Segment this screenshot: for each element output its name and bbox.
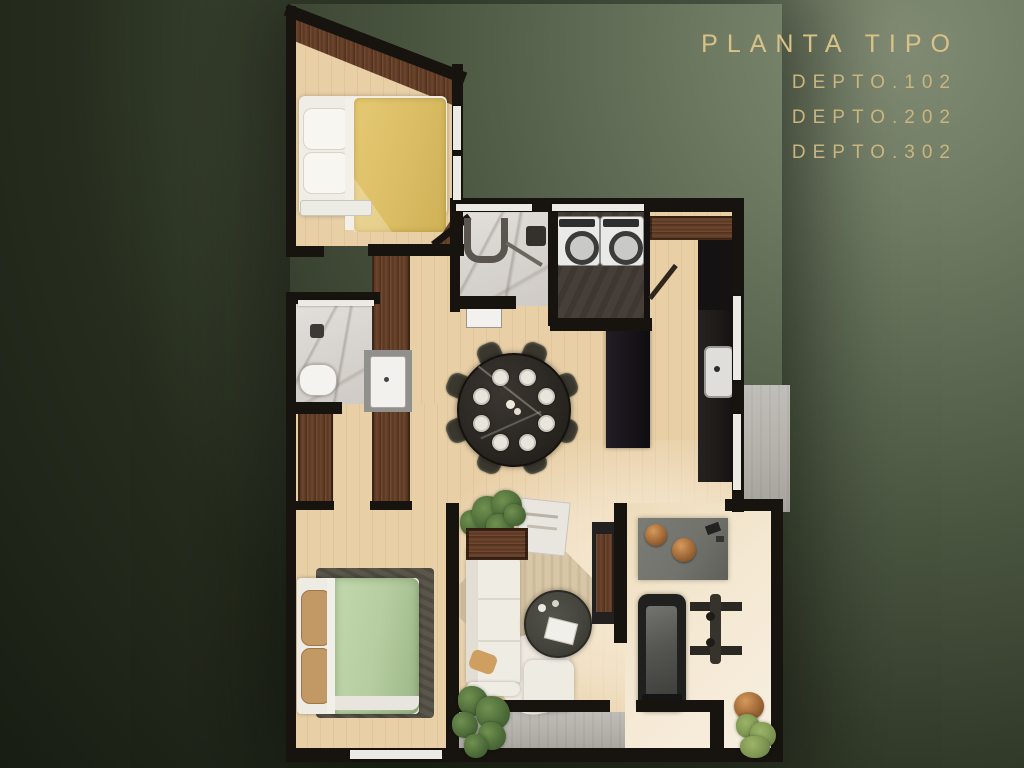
coffee-table-cup bbox=[538, 604, 546, 612]
bedroom2-window bbox=[350, 750, 442, 759]
wall bbox=[450, 296, 516, 309]
closet-end-cap bbox=[370, 501, 412, 510]
place-setting bbox=[473, 388, 490, 405]
floor-plan-scene: { "title_block": { "title": "PLANTA TIPO… bbox=[0, 0, 1024, 768]
barbell-plate bbox=[706, 612, 715, 621]
kitchen-sink bbox=[704, 346, 734, 398]
wall bbox=[548, 208, 558, 326]
wall bbox=[771, 499, 783, 762]
wall bbox=[710, 700, 724, 760]
place-setting bbox=[492, 369, 509, 386]
plant-leaves bbox=[504, 504, 526, 526]
table-centerpiece bbox=[514, 408, 521, 415]
bed2-duvet-green bbox=[335, 578, 419, 714]
planter-box bbox=[466, 528, 528, 560]
wall bbox=[550, 318, 652, 331]
unit-label: DEPTO.102 bbox=[701, 72, 957, 94]
bathroom2-glass bbox=[298, 300, 374, 306]
toilet1 bbox=[464, 218, 508, 263]
place-setting bbox=[538, 415, 555, 432]
table-centerpiece bbox=[506, 400, 515, 409]
wall bbox=[286, 292, 296, 762]
washer-door bbox=[565, 231, 599, 265]
kitchen-faucet bbox=[714, 366, 720, 372]
stool bbox=[672, 538, 696, 562]
bedroom1-window bbox=[453, 156, 461, 200]
kitchen-tall-unit bbox=[698, 240, 736, 310]
washer-panel bbox=[559, 219, 595, 227]
page-title: PLANTA TIPO bbox=[701, 30, 959, 59]
barbell-plate bbox=[706, 638, 715, 647]
shower-fixture bbox=[526, 226, 546, 246]
kitchen-island bbox=[606, 326, 650, 448]
place-setting bbox=[492, 434, 509, 451]
wall bbox=[614, 503, 627, 643]
toilet2 bbox=[299, 364, 337, 396]
place-setting bbox=[538, 388, 555, 405]
closet-end-cap bbox=[296, 501, 334, 510]
place-setting bbox=[519, 434, 536, 451]
dryer-panel bbox=[603, 219, 639, 227]
closet-left bbox=[298, 410, 333, 504]
vanity2-sink bbox=[370, 356, 406, 408]
bedroom1-window bbox=[453, 106, 461, 150]
bed1-bench bbox=[300, 200, 372, 216]
title-block: PLANTA TIPO DEPTO.102 DEPTO.202 DEPTO.30… bbox=[701, 30, 950, 164]
tv-console-shelf bbox=[596, 534, 612, 612]
stool bbox=[645, 524, 667, 546]
coffee-table-cup bbox=[552, 600, 559, 607]
desk-item bbox=[716, 536, 724, 542]
place-setting bbox=[473, 415, 490, 432]
wall bbox=[450, 198, 460, 312]
place-setting bbox=[519, 369, 536, 386]
wall bbox=[286, 6, 296, 256]
bed1-pillow bbox=[303, 108, 349, 150]
bed1-pillow bbox=[303, 152, 349, 194]
corner-grass-plant bbox=[740, 736, 770, 758]
kitchen-top-counter bbox=[650, 216, 736, 240]
wall bbox=[286, 402, 342, 414]
vanity2-faucet bbox=[384, 377, 389, 382]
terrace-door-glass bbox=[733, 414, 741, 490]
unit-label: DEPTO.302 bbox=[701, 142, 957, 164]
treadmill-belt bbox=[646, 606, 677, 698]
shower-glass bbox=[456, 204, 532, 211]
laundry-glass bbox=[552, 204, 644, 211]
wall bbox=[286, 246, 324, 257]
unit-label: DEPTO.202 bbox=[701, 107, 957, 129]
shower-drain bbox=[310, 324, 324, 338]
terrace-right-floor bbox=[742, 385, 790, 512]
balcony-plant bbox=[464, 734, 488, 758]
bed2-blanket bbox=[335, 696, 419, 710]
dryer-door bbox=[609, 231, 643, 265]
kitchen-window bbox=[733, 296, 741, 380]
barbell bbox=[710, 594, 721, 664]
